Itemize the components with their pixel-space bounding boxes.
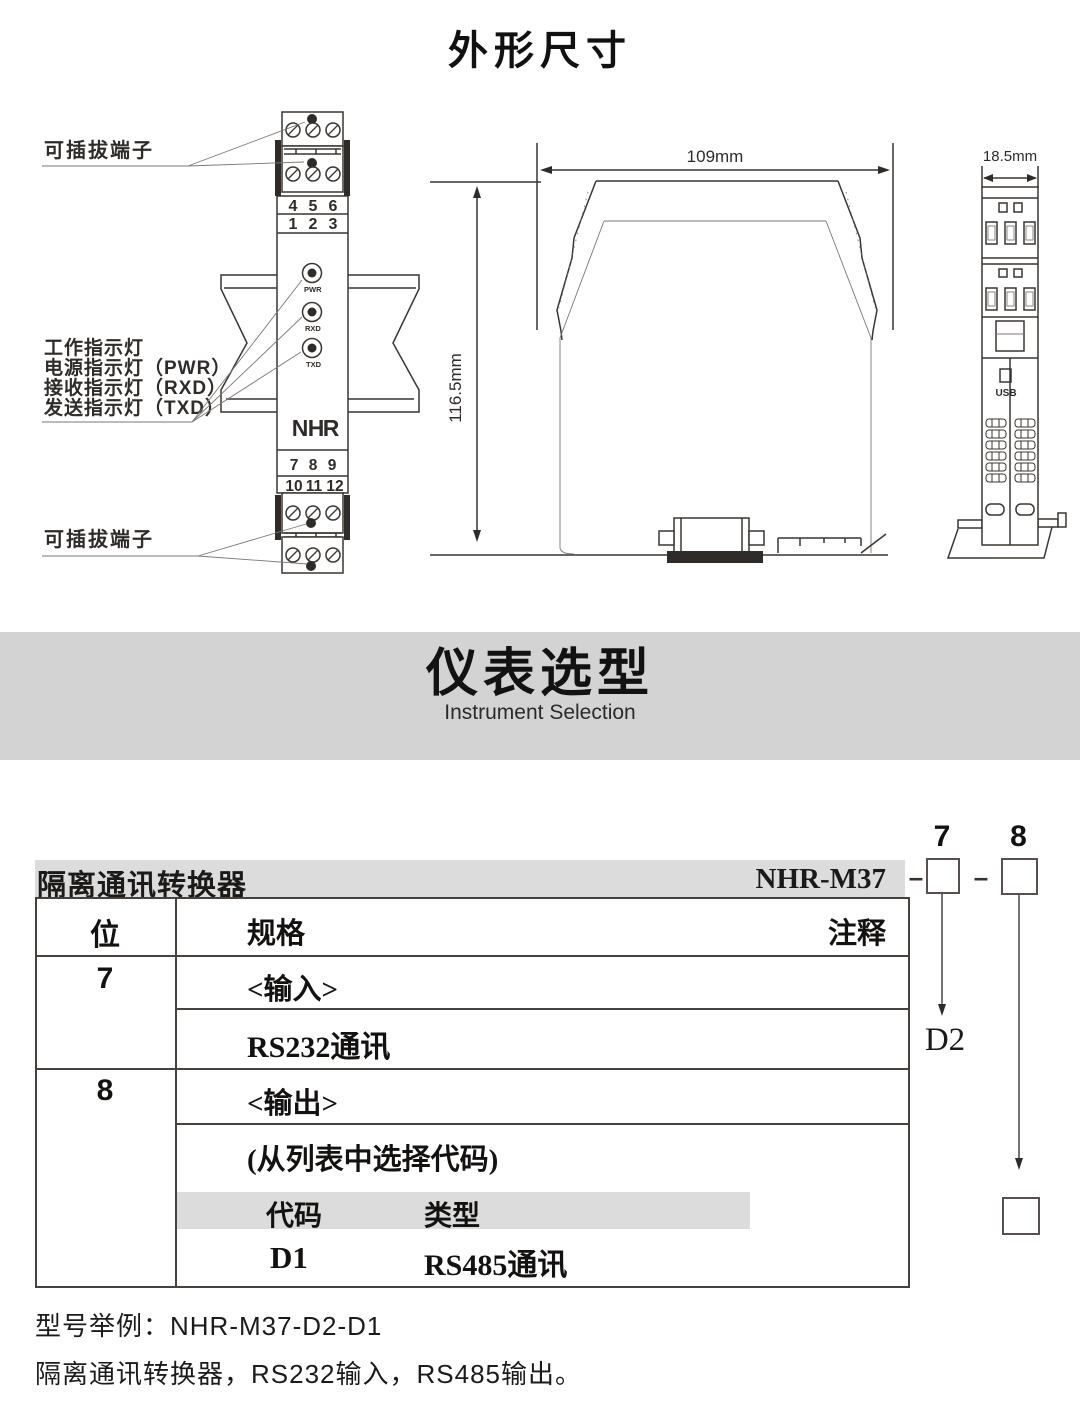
row-divider-1 — [35, 955, 910, 957]
digit8-result-box — [1002, 1197, 1040, 1235]
row7-position: 7 — [35, 962, 175, 996]
inner-divider-1 — [177, 1008, 910, 1010]
digit7-label: 7 — [926, 820, 958, 854]
row8-position: 8 — [35, 1074, 175, 1108]
row8-note: (从列表中选择代码) — [247, 1136, 498, 1178]
terminal-2: 2 — [309, 216, 318, 233]
terminal-7: 7 — [290, 457, 299, 474]
digit8-label: 8 — [1001, 820, 1036, 854]
model-dash-2: – — [961, 862, 1001, 893]
depth-dimension: 18.5mm — [983, 148, 1037, 165]
model-example-line2: 隔离通讯转换器，RS232输入，RS485输出。 — [35, 1354, 582, 1391]
indicator-label-1: 工作指示灯 — [44, 336, 144, 359]
svg-text:R: R — [323, 415, 340, 441]
terminal-3: 3 — [329, 216, 338, 233]
pluggable-terminal-label-top: 可插拔端子 — [44, 138, 154, 162]
col-header-spec: 规格 — [247, 910, 305, 952]
type-d1-value: RS485通讯 — [424, 1240, 567, 1284]
width-dimension: 109mm — [687, 147, 744, 166]
row8-title: <输出> — [247, 1080, 338, 1122]
model-number: NHR-M37 — [756, 863, 886, 896]
model-example-line1: 型号举例：NHR-M37-D2-D1 — [35, 1306, 382, 1343]
digit7-box — [926, 858, 960, 894]
banner-title: 仪表选型 — [0, 632, 1080, 703]
model-dash-1: – — [905, 862, 927, 893]
col-header-note: 注释 — [600, 910, 886, 952]
datasheet-page: 外形尺寸 — [0, 0, 1080, 1402]
section-banner: 仪表选型 Instrument Selection — [0, 632, 1080, 760]
code-column-header: 代码 — [266, 1194, 322, 1234]
led-rxd-label: RXD — [305, 324, 321, 333]
profile-view: 18.5mm — [948, 148, 1066, 558]
indicator-label-4: 发送指示灯（TXD） — [43, 396, 225, 419]
banner-subtitle: Instrument Selection — [0, 701, 1080, 725]
terminal-6: 6 — [329, 198, 338, 215]
code-d2-value: D2 — [915, 1022, 975, 1059]
svg-text:N: N — [292, 415, 309, 441]
type-column-header: 类型 — [424, 1194, 480, 1234]
terminal-5: 5 — [309, 198, 318, 215]
pluggable-terminal-label-bottom: 可插拔端子 — [44, 527, 154, 551]
side-view: 116.5mm 109mm — [430, 143, 893, 563]
model-header-bar: 隔离通讯转换器 NHR-M37 — [35, 860, 905, 897]
nhr-logo: N H R — [292, 415, 340, 441]
led-txd-label: TXD — [306, 360, 322, 369]
outline-drawing: 4 5 6 1 2 3 PWR RXD TXD N H R — [0, 0, 1080, 632]
row7-title: <输入> — [247, 966, 338, 1008]
code-d1-value: D1 — [270, 1240, 308, 1276]
terminal-1: 1 — [289, 216, 298, 233]
terminal-8: 8 — [309, 457, 318, 474]
col-header-position: 位 — [35, 910, 175, 954]
usb-label: USB — [995, 388, 1016, 399]
row7-value: RS232通讯 — [247, 1022, 390, 1066]
inner-divider-2 — [177, 1123, 910, 1125]
digit8-box — [1001, 858, 1038, 895]
terminal-9: 9 — [328, 457, 337, 474]
module-front-view: 4 5 6 1 2 3 PWR RXD TXD N H R — [275, 112, 350, 573]
height-dimension: 116.5mm — [446, 353, 465, 423]
indicator-label-2: 电源指示灯（PWR） — [44, 356, 231, 379]
led-pwr-label: PWR — [304, 285, 322, 294]
indicator-label-3: 接收指示灯（RXD） — [44, 376, 227, 399]
row-divider-2 — [35, 1068, 910, 1070]
terminal-4: 4 — [289, 198, 298, 215]
